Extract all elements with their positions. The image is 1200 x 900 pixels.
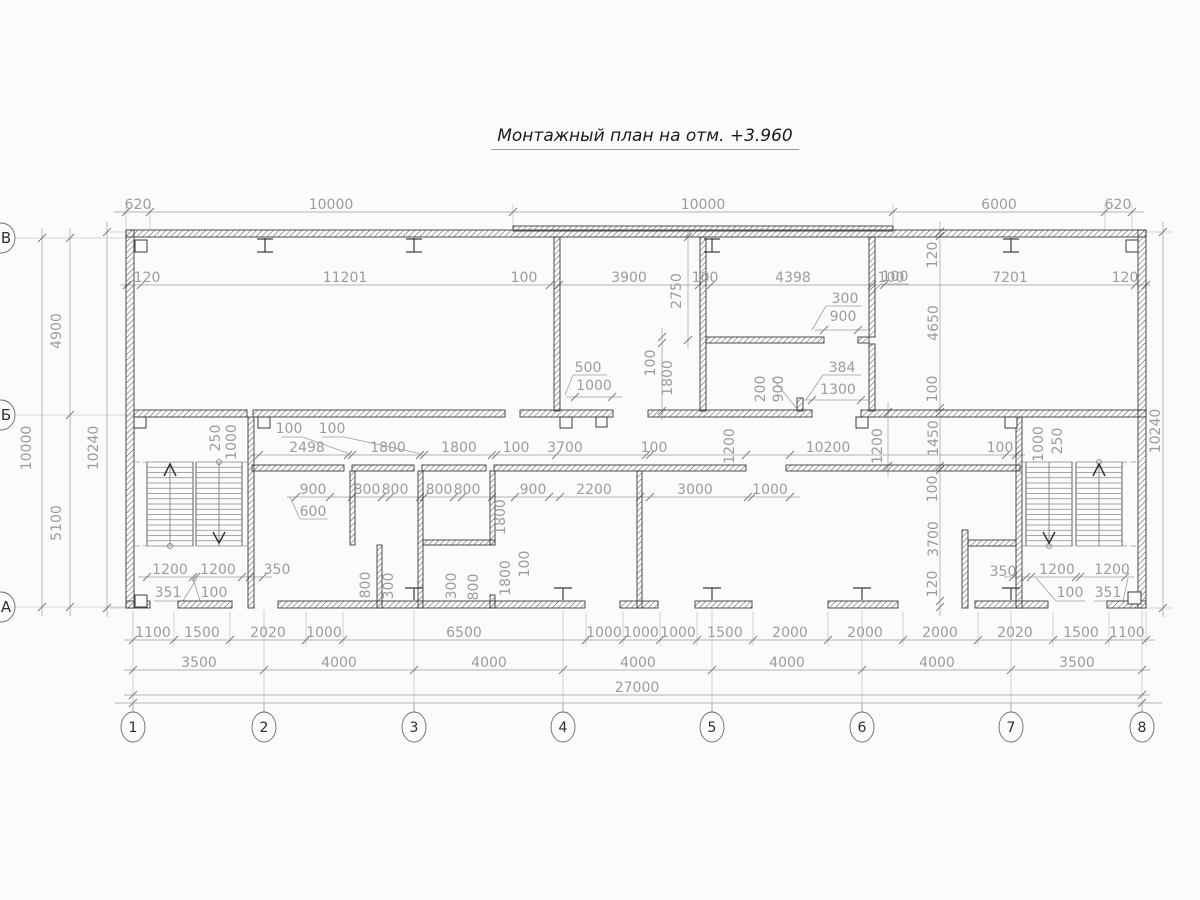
dim-label: 2000	[847, 625, 883, 641]
row-bubble-label: Б	[1, 406, 11, 424]
dim-label: 900	[300, 482, 327, 498]
dim-label: 3900	[611, 270, 647, 286]
dim-label: 1500	[184, 625, 220, 641]
dim-label: 1100	[1109, 625, 1145, 641]
dim-label: 2200	[576, 482, 612, 498]
dim-label: 800	[454, 482, 481, 498]
dim-label: 7201	[992, 270, 1028, 286]
dim-label: 1000	[586, 625, 622, 641]
dim-label: 1200	[200, 562, 236, 578]
dim-label: 1000	[660, 625, 696, 641]
dim-label: 1000	[623, 625, 659, 641]
dim-label: 800	[354, 482, 381, 498]
dim-label: 3500	[181, 655, 217, 671]
dim-label: 10000	[309, 197, 354, 213]
dimension-labels: 6201000010000600062012011201100390010043…	[19, 197, 1164, 696]
dim-label: 1000	[306, 625, 342, 641]
dim-label: 3700	[547, 440, 583, 456]
dim-label: 600	[300, 504, 327, 520]
dim-label: 4000	[471, 655, 507, 671]
dim-label: 10000	[681, 197, 726, 213]
dim-label: 1000	[752, 482, 788, 498]
dim-label: 800	[426, 482, 453, 498]
dim-label: 1000	[1031, 426, 1047, 462]
dim-label: 10000	[19, 426, 35, 471]
dim-label: 100	[511, 270, 538, 286]
dim-label: 250	[1050, 428, 1066, 455]
dim-label: 2000	[772, 625, 808, 641]
dim-label: 1200	[870, 428, 886, 464]
dim-label: 800	[466, 574, 482, 601]
dim-label: 1200	[152, 562, 188, 578]
dim-label: 1800	[493, 499, 509, 535]
dim-label: 1500	[707, 625, 743, 641]
grid-bubble-label: 7	[1007, 720, 1016, 736]
floor-plan-drawing: 6201000010000600062012011201100390010043…	[0, 0, 1200, 900]
dim-label: 900	[520, 482, 547, 498]
dim-label: 4650	[926, 305, 942, 341]
dim-label: 900	[771, 376, 787, 403]
dim-label: 100	[276, 421, 303, 437]
dim-label: 100	[643, 350, 659, 377]
dim-label: 3000	[677, 482, 713, 498]
dim-label: 4398	[775, 270, 811, 286]
row-bubble-label: А	[1, 598, 12, 616]
dim-label: 900	[830, 309, 857, 325]
dim-label: 100	[692, 270, 719, 286]
dim-label: 100	[503, 440, 530, 456]
dim-label: 1500	[1063, 625, 1099, 641]
dim-label: 1800	[660, 360, 676, 396]
grid-bubble-label: 5	[708, 720, 717, 736]
dim-label: 120	[134, 270, 161, 286]
dim-label: 3500	[1059, 655, 1095, 671]
dim-label: 100	[882, 269, 909, 285]
dim-label: 2020	[997, 625, 1033, 641]
dim-label: 120	[925, 242, 941, 269]
dim-label: 1200	[1094, 562, 1130, 578]
grid-bubble-label: 8	[1138, 720, 1147, 736]
dim-label: 384	[829, 360, 856, 376]
dim-label: 2750	[669, 273, 685, 309]
dim-label: 620	[1105, 197, 1132, 213]
dim-label: 4000	[321, 655, 357, 671]
dim-label: 300	[381, 573, 397, 600]
dim-label: 11201	[323, 270, 368, 286]
grid-bubble-label: 3	[410, 720, 419, 736]
dim-label: 10200	[806, 440, 851, 456]
dim-label: 1000	[224, 424, 240, 460]
dim-label: 350	[264, 562, 291, 578]
dim-label: 100	[319, 421, 346, 437]
grid-bubble-label: 6	[858, 720, 867, 736]
dim-label: 300	[832, 291, 859, 307]
dim-label: 10240	[86, 426, 102, 471]
dim-label: 2498	[289, 440, 325, 456]
grid-bubble-label: 1	[129, 720, 138, 736]
dim-label: 100	[641, 440, 668, 456]
dim-label: 1100	[135, 625, 171, 641]
dim-label: 4000	[620, 655, 656, 671]
dim-label: 27000	[615, 680, 660, 696]
dim-label: 1300	[820, 382, 856, 398]
dim-label: 1800	[441, 440, 477, 456]
dim-label: 2000	[922, 625, 958, 641]
dim-label: 6000	[981, 197, 1017, 213]
dim-label: 1000	[576, 378, 612, 394]
dim-label: 5100	[49, 505, 65, 541]
dim-label: 1200	[722, 428, 738, 464]
dim-label: 1200	[1039, 562, 1075, 578]
dim-label: 120	[925, 571, 941, 598]
dim-label: 2020	[250, 625, 286, 641]
dim-label: 351	[155, 585, 182, 601]
dim-label: 250	[208, 425, 224, 452]
row-bubble-label: В	[1, 229, 11, 247]
dim-label: 4900	[49, 313, 65, 349]
dim-label: 6500	[446, 625, 482, 641]
dim-label: 300	[444, 573, 460, 600]
grid-bubble-label: 2	[260, 720, 269, 736]
dim-label: 100	[987, 440, 1014, 456]
dim-label: 800	[358, 572, 374, 599]
dim-label: 351	[1095, 585, 1122, 601]
dim-label: 4000	[919, 655, 955, 671]
dim-label: 100	[925, 476, 941, 503]
grid-bubble-label: 4	[559, 720, 568, 736]
dim-label: 100	[201, 585, 228, 601]
dim-label: 800	[382, 482, 409, 498]
dim-label: 10240	[1148, 409, 1164, 454]
dim-label: 1800	[370, 440, 406, 456]
dim-label: 120	[1112, 270, 1139, 286]
dim-label: 350	[990, 564, 1017, 580]
dim-label: 500	[575, 360, 602, 376]
dim-label: 100	[925, 376, 941, 403]
stairs	[134, 460, 1138, 549]
dim-label: 4000	[769, 655, 805, 671]
dim-label: 620	[125, 197, 152, 213]
dim-label: 3700	[926, 521, 942, 557]
dim-label: 1800	[498, 560, 514, 596]
dim-label: 100	[517, 551, 533, 578]
dim-label: 1450	[926, 420, 942, 456]
dim-label: 100	[1057, 585, 1084, 601]
dim-label: 200	[753, 376, 769, 403]
